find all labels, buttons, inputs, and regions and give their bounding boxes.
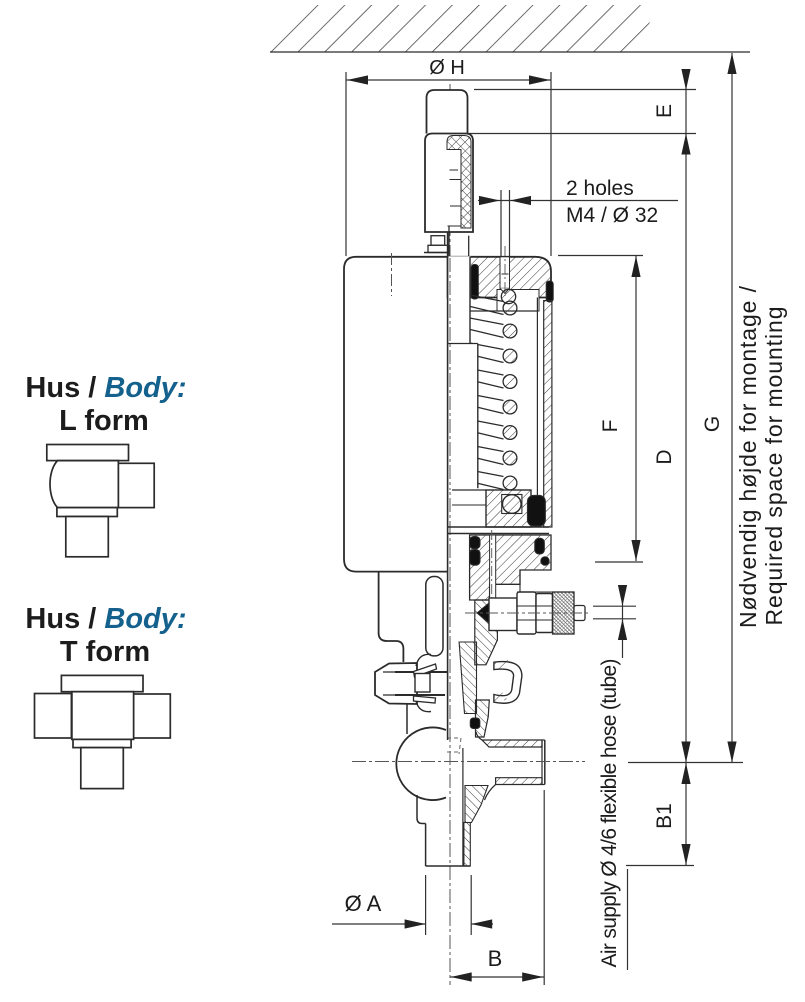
svg-text:Hus / Body:: Hus / Body: (25, 603, 186, 635)
svg-text:B: B (488, 946, 503, 971)
svg-text:B1: B1 (653, 803, 676, 829)
svg-text:Ø A: Ø A (345, 891, 382, 916)
svg-text:Nødvendig højde for montage /: Nødvendig højde for montage / (735, 285, 761, 628)
svg-text:F: F (599, 420, 622, 433)
svg-text:D: D (653, 449, 676, 464)
svg-text:M4 / Ø 32: M4 / Ø 32 (566, 204, 658, 227)
svg-text:Hus / Body:: Hus / Body: (25, 372, 186, 404)
svg-text:L form: L form (59, 405, 149, 437)
svg-text:G: G (701, 416, 724, 432)
svg-text:2 holes: 2 holes (566, 177, 634, 200)
svg-text:Ø H: Ø H (429, 57, 465, 79)
svg-text:Required space for mounting: Required space for mounting (761, 307, 787, 626)
svg-text:E: E (653, 104, 676, 118)
svg-text:Air supply Ø 4/6 flexible hose: Air supply Ø 4/6 flexible hose (tube) (598, 659, 621, 968)
svg-text:T form: T form (60, 636, 150, 668)
